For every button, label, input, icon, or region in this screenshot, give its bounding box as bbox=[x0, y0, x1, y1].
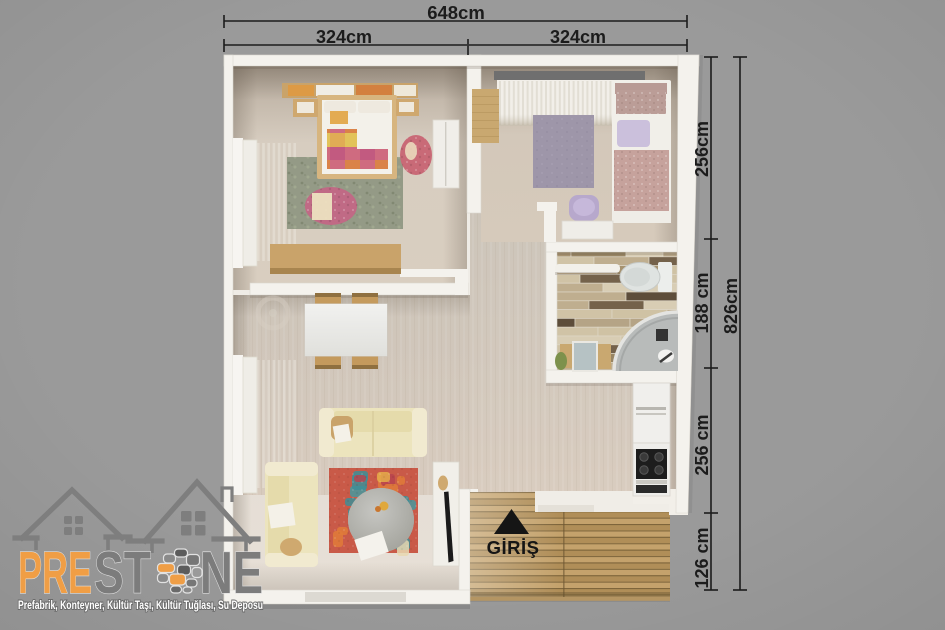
svg-text:ST: ST bbox=[94, 540, 151, 606]
svg-text:NE: NE bbox=[200, 540, 263, 606]
svg-text:PRE: PRE bbox=[18, 540, 92, 606]
svg-text:188 cm: 188 cm bbox=[692, 272, 712, 333]
svg-text:324cm: 324cm bbox=[316, 27, 372, 47]
svg-text:Prefabrik, Konteyner, Kültür T: Prefabrik, Konteyner, Kültür Taşı, Kültü… bbox=[18, 598, 263, 612]
svg-text:648cm: 648cm bbox=[427, 2, 485, 23]
svg-text:GİRİŞ: GİRİŞ bbox=[487, 537, 540, 558]
svg-text:256 cm: 256 cm bbox=[692, 414, 712, 475]
svg-text:126 cm: 126 cm bbox=[692, 527, 712, 588]
svg-text:826cm: 826cm bbox=[721, 278, 741, 334]
svg-text:324cm: 324cm bbox=[550, 27, 606, 47]
svg-text:256cm: 256cm bbox=[692, 121, 712, 177]
